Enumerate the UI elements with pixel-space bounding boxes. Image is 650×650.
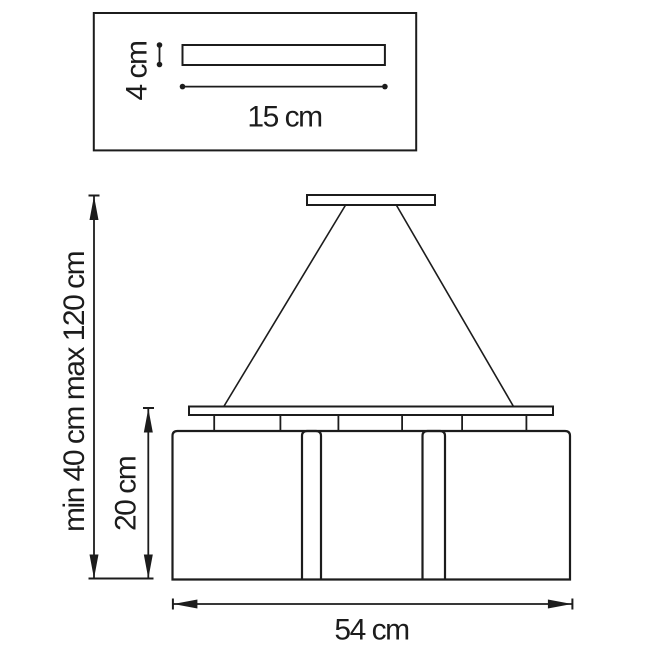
svg-text:15 cm: 15 cm: [247, 101, 322, 134]
svg-text:20 cm: 20 cm: [110, 456, 143, 531]
svg-text:min 40 cm max 120 cm: min 40 cm max 120 cm: [58, 251, 91, 532]
svg-text:54 cm: 54 cm: [334, 614, 409, 647]
svg-text:4 cm: 4 cm: [121, 41, 154, 101]
